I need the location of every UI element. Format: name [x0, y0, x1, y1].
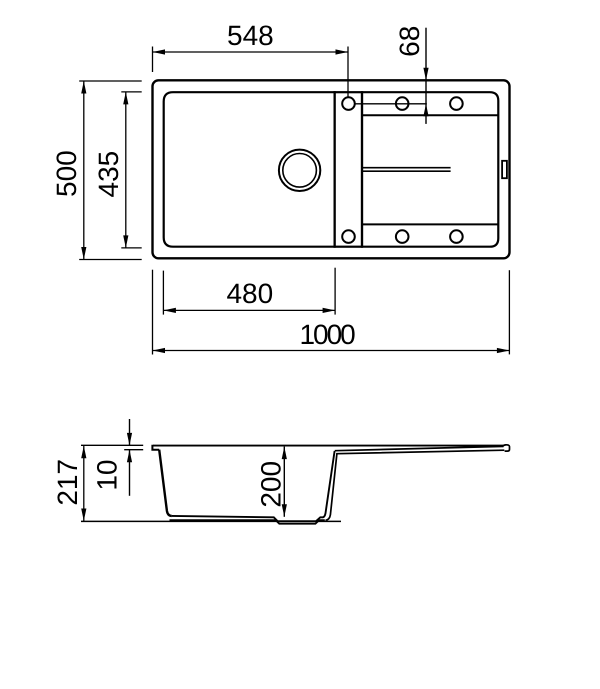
svg-text:217: 217 — [52, 459, 83, 506]
svg-text:10: 10 — [91, 460, 122, 491]
svg-text:68: 68 — [394, 26, 425, 57]
svg-text:1000: 1000 — [299, 319, 355, 350]
svg-text:500: 500 — [51, 150, 82, 197]
svg-text:435: 435 — [93, 151, 124, 198]
svg-text:480: 480 — [226, 278, 273, 309]
svg-text:200: 200 — [255, 461, 286, 508]
svg-text:548: 548 — [227, 20, 274, 51]
